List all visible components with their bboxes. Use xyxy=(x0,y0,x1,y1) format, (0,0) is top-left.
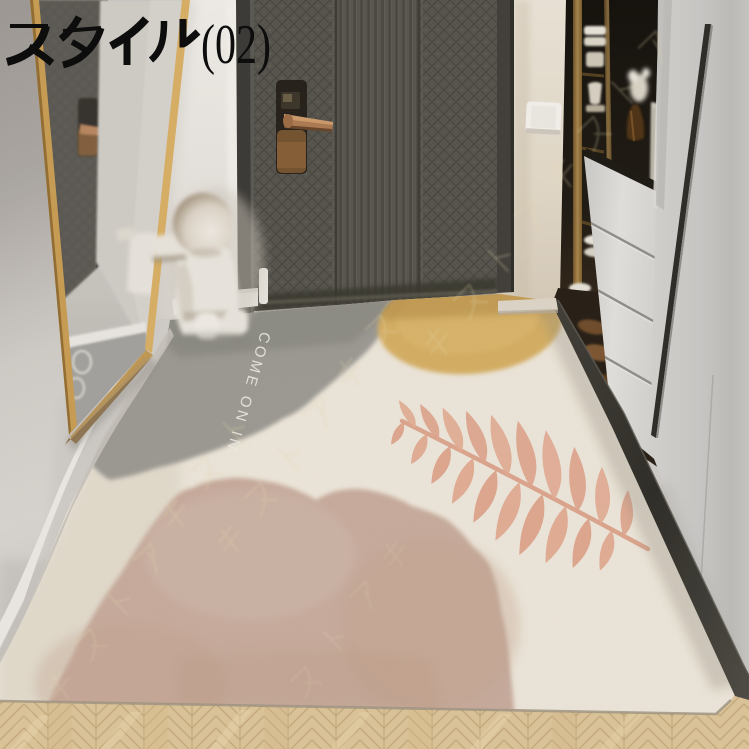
svg-text:(02): (02) xyxy=(201,14,271,76)
